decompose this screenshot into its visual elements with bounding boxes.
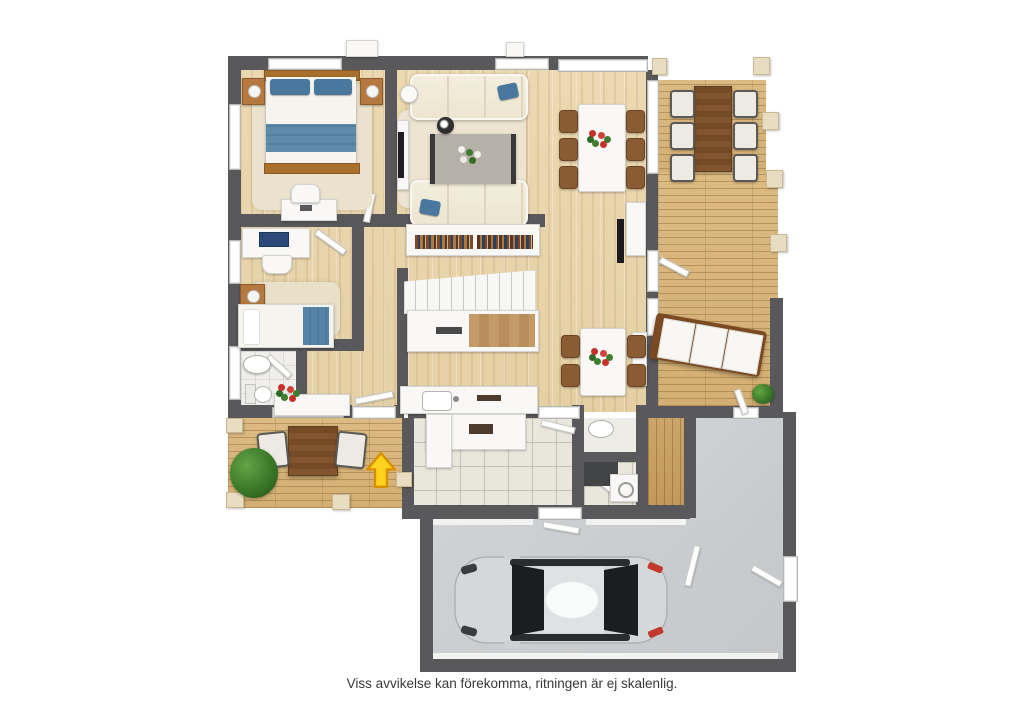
kitchen-chair xyxy=(627,364,646,387)
single-bed-pillow xyxy=(243,309,260,345)
deck-post xyxy=(753,57,770,75)
lounger-cushion xyxy=(722,329,763,374)
flower-sideboard xyxy=(274,394,350,416)
garage-side-door-opening xyxy=(783,556,798,602)
kitchen-table xyxy=(580,328,626,396)
tv-right-wall xyxy=(617,219,624,263)
deck-post xyxy=(770,234,787,252)
bed-pillow xyxy=(314,79,352,95)
round-side-table xyxy=(437,117,454,134)
toilet-bowl xyxy=(254,386,272,403)
kitchen-island xyxy=(407,310,539,352)
sofa-pillow xyxy=(497,82,520,101)
book-row xyxy=(415,235,473,249)
outdoor-chair xyxy=(733,90,758,118)
front-door-opening xyxy=(352,406,396,419)
computer-monitor xyxy=(259,232,289,247)
car-top-view xyxy=(452,551,672,649)
coffee-table-runner xyxy=(430,134,516,184)
single-bed-blanket xyxy=(303,307,329,345)
wall-hall-left xyxy=(402,418,414,510)
patio-post xyxy=(226,418,243,433)
kitchen-chair xyxy=(561,335,580,358)
deck-door-opening xyxy=(647,250,659,292)
patio-table xyxy=(288,426,338,476)
kitchen-chair xyxy=(627,335,646,358)
bathroom-sink xyxy=(243,355,271,374)
window-living-top xyxy=(495,58,549,70)
outdoor-chair xyxy=(733,122,758,150)
dining-chair xyxy=(559,110,578,133)
lamp xyxy=(366,85,379,98)
window-left-bedroom xyxy=(229,104,241,170)
wall-kidsroom-right xyxy=(352,227,364,347)
patio-post xyxy=(332,494,350,510)
desk-item xyxy=(300,205,312,211)
glass-wall-dining-deck xyxy=(647,80,659,174)
kitchen-chair xyxy=(561,364,580,387)
kitchen-table-flowers xyxy=(591,348,598,355)
outdoor-chair xyxy=(670,122,695,150)
bedroom-desk-chair xyxy=(291,184,320,203)
garage-wall-lining-top-left xyxy=(433,519,533,525)
single-bed xyxy=(238,304,334,348)
wall-garage-bottom xyxy=(420,659,796,672)
sideboard-flowers xyxy=(278,384,285,391)
lamp xyxy=(247,290,260,303)
lamp xyxy=(248,85,261,98)
outdoor-chair xyxy=(670,154,695,182)
deck-post xyxy=(652,58,667,75)
kitchen-island-wood-front xyxy=(469,314,535,347)
tv-living xyxy=(398,132,404,178)
outdoor-chair xyxy=(733,154,758,182)
deck-post xyxy=(762,112,779,130)
bed-blanket xyxy=(266,124,356,152)
kitchen-faucet xyxy=(453,396,459,402)
wall-garage-left xyxy=(420,512,433,672)
dining-chair xyxy=(626,138,645,161)
kitchen-counter xyxy=(400,386,538,414)
patio-chair xyxy=(334,431,368,470)
book-row xyxy=(477,235,533,249)
patio-post xyxy=(396,472,412,487)
window-left-bathroom xyxy=(229,346,241,400)
deck-potted-plant xyxy=(752,384,774,404)
floor-plan-rendering: Viss avvikelse kan förekomma, ritningen … xyxy=(0,0,1024,724)
outdoor-chair xyxy=(670,90,695,118)
table-flowers xyxy=(458,146,465,153)
wall-bedroom-living-divider xyxy=(385,56,397,226)
wall-wc-divider xyxy=(578,452,640,462)
bed-footboard xyxy=(264,163,360,174)
wall-sauna-storage-top xyxy=(648,406,783,418)
sofa-pillow xyxy=(419,198,441,216)
dining-table xyxy=(578,104,626,192)
kids-desk-chair xyxy=(262,255,292,274)
runner-end xyxy=(430,134,435,184)
dining-flowers xyxy=(589,130,596,137)
window-sill-box xyxy=(506,42,524,57)
hall-garage-door-opening xyxy=(538,507,582,520)
wc-sink xyxy=(588,420,614,438)
counter-tray xyxy=(477,395,501,401)
garage-wall-lining-top-right xyxy=(586,519,686,525)
window-left-kidsroom xyxy=(229,240,241,284)
runner-end xyxy=(511,134,516,184)
sofa-bottom xyxy=(410,180,528,226)
sofa-top xyxy=(410,74,528,120)
double-bed xyxy=(264,70,358,172)
bed-pillow xyxy=(270,79,310,95)
outdoor-dining-table xyxy=(694,86,732,172)
dining-chair xyxy=(626,110,645,133)
deck-post xyxy=(766,170,783,188)
wall-right-outer xyxy=(783,412,796,672)
dining-chair xyxy=(626,166,645,189)
window-bedroom-top xyxy=(268,58,342,70)
washing-machine xyxy=(610,474,638,502)
wall-sauna-storage xyxy=(684,406,696,518)
entry-counter-return xyxy=(426,414,452,468)
disclaimer-caption: Viss avvikelse kan förekomma, ritningen … xyxy=(0,676,1024,691)
bookshelf xyxy=(406,224,540,256)
kitchen-sink xyxy=(422,391,452,411)
entrance-arrow-icon xyxy=(366,452,396,488)
patio-bush xyxy=(230,448,278,498)
sauna-floor xyxy=(648,414,684,512)
garage-wall-lining-bottom xyxy=(433,653,778,659)
dining-chair xyxy=(559,166,578,189)
sliding-door-top-right xyxy=(558,59,648,72)
dining-chair xyxy=(559,138,578,161)
kitchen-hall-door-opening xyxy=(538,406,580,419)
entry-counter-tray xyxy=(469,424,493,434)
tv-sideboard-right xyxy=(626,202,646,256)
washer-door xyxy=(618,482,634,498)
nightstand xyxy=(242,78,265,105)
kids-desk xyxy=(242,228,310,258)
nightstand xyxy=(360,78,383,105)
floor-lamp xyxy=(400,85,418,103)
kitchen-oven xyxy=(436,327,462,334)
chimney-box xyxy=(346,40,378,57)
